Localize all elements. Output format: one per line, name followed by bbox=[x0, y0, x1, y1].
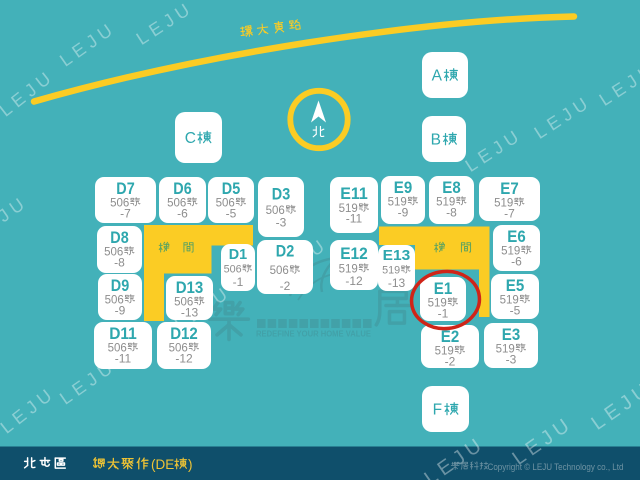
svg-text:-6: -6 bbox=[511, 254, 522, 268]
svg-text:-1: -1 bbox=[233, 275, 244, 289]
svg-text:-1: -1 bbox=[438, 306, 449, 320]
svg-text:-8: -8 bbox=[114, 255, 125, 269]
svg-text:D1: D1 bbox=[229, 247, 247, 263]
svg-text:-9: -9 bbox=[398, 205, 409, 219]
svg-text:F: F bbox=[433, 402, 442, 419]
svg-text:-2: -2 bbox=[280, 279, 291, 293]
svg-text:D13: D13 bbox=[176, 278, 204, 297]
svg-text:D11: D11 bbox=[109, 324, 137, 343]
svg-text:E6: E6 bbox=[507, 227, 525, 246]
svg-text:D6: D6 bbox=[173, 179, 191, 198]
svg-text:D9: D9 bbox=[111, 276, 129, 295]
svg-text:Copyright © LEJU Technology co: Copyright © LEJU Technology co., Ltd bbox=[488, 462, 624, 473]
svg-text:E7: E7 bbox=[500, 179, 518, 198]
svg-text:(DE: (DE bbox=[151, 457, 174, 472]
svg-text:-3: -3 bbox=[506, 352, 517, 366]
svg-text:D3: D3 bbox=[272, 185, 290, 204]
svg-text:B: B bbox=[431, 132, 441, 149]
svg-text:E12: E12 bbox=[340, 244, 368, 263]
svg-text:506: 506 bbox=[224, 264, 242, 276]
svg-text:-3: -3 bbox=[276, 216, 287, 230]
svg-text:519: 519 bbox=[382, 265, 400, 277]
svg-text:-11: -11 bbox=[115, 351, 132, 365]
svg-text:E11: E11 bbox=[340, 184, 368, 203]
svg-text:-5: -5 bbox=[510, 303, 521, 317]
svg-text:A: A bbox=[432, 68, 443, 85]
svg-text:E1: E1 bbox=[434, 279, 452, 298]
svg-text:D8: D8 bbox=[110, 228, 128, 247]
svg-text:C: C bbox=[185, 130, 196, 147]
svg-text:): ) bbox=[188, 457, 193, 472]
svg-text:-13: -13 bbox=[181, 305, 199, 319]
svg-text:-12: -12 bbox=[175, 351, 193, 365]
svg-text:-2: -2 bbox=[445, 354, 456, 368]
svg-text:REDEFINE YOUR HOME VALUE: REDEFINE YOUR HOME VALUE bbox=[256, 329, 371, 339]
svg-text:-7: -7 bbox=[504, 206, 515, 220]
svg-text:-9: -9 bbox=[115, 303, 126, 317]
svg-text:-13: -13 bbox=[388, 276, 406, 290]
svg-text:E3: E3 bbox=[502, 325, 520, 344]
svg-text:-8: -8 bbox=[446, 205, 457, 219]
svg-text:E5: E5 bbox=[506, 276, 524, 295]
svg-text:D2: D2 bbox=[276, 242, 294, 261]
svg-text:-5: -5 bbox=[226, 206, 237, 220]
svg-text:E13: E13 bbox=[383, 248, 411, 264]
svg-text:-11: -11 bbox=[346, 212, 363, 226]
svg-text:-12: -12 bbox=[345, 274, 363, 288]
svg-text:D7: D7 bbox=[116, 179, 134, 198]
svg-text:506: 506 bbox=[270, 265, 289, 277]
svg-text:-7: -7 bbox=[120, 206, 131, 220]
svg-text:E9: E9 bbox=[394, 178, 412, 197]
svg-text:E8: E8 bbox=[442, 178, 460, 197]
svg-text:D5: D5 bbox=[222, 179, 240, 198]
svg-text:-6: -6 bbox=[177, 206, 188, 220]
svg-text:D12: D12 bbox=[170, 324, 198, 343]
